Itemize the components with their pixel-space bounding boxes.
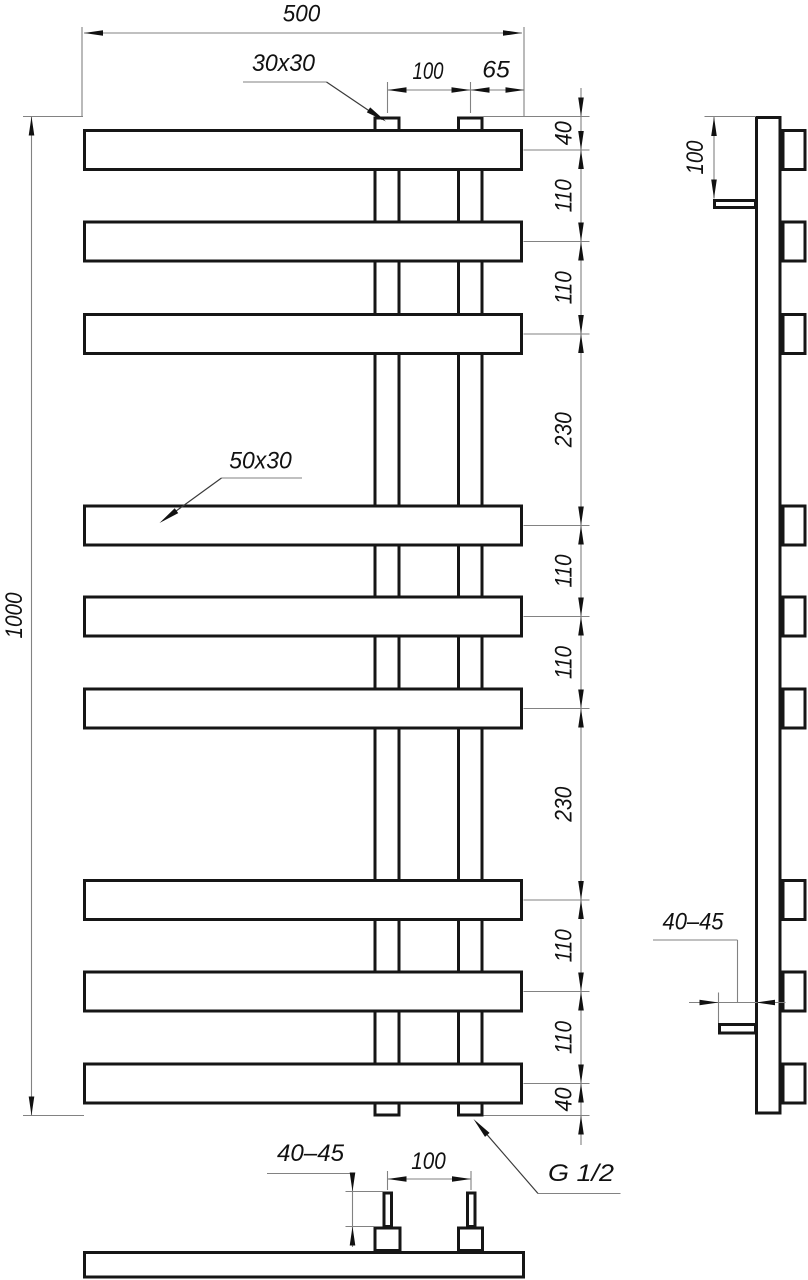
svg-text:40: 40 bbox=[551, 1087, 578, 1112]
svg-text:230: 230 bbox=[551, 786, 578, 822]
svg-text:1000: 1000 bbox=[1, 592, 28, 639]
svg-text:50x30: 50x30 bbox=[229, 448, 292, 475]
svg-text:100: 100 bbox=[413, 58, 445, 85]
svg-text:110: 110 bbox=[551, 271, 578, 305]
svg-text:100: 100 bbox=[411, 1148, 446, 1175]
svg-text:230: 230 bbox=[551, 412, 578, 448]
svg-text:100: 100 bbox=[682, 140, 709, 175]
svg-text:30x30: 30x30 bbox=[252, 50, 316, 77]
svg-text:65: 65 bbox=[482, 57, 510, 84]
svg-text:40: 40 bbox=[551, 121, 578, 146]
svg-text:G 1/2: G 1/2 bbox=[548, 1160, 614, 1187]
svg-text:40–45: 40–45 bbox=[663, 909, 725, 936]
svg-text:40–45: 40–45 bbox=[277, 1140, 345, 1167]
svg-text:110: 110 bbox=[551, 645, 578, 679]
svg-text:110: 110 bbox=[551, 1020, 578, 1054]
svg-text:110: 110 bbox=[551, 554, 578, 588]
svg-text:500: 500 bbox=[283, 1, 321, 28]
svg-text:110: 110 bbox=[551, 179, 578, 213]
svg-text:110: 110 bbox=[551, 929, 578, 963]
